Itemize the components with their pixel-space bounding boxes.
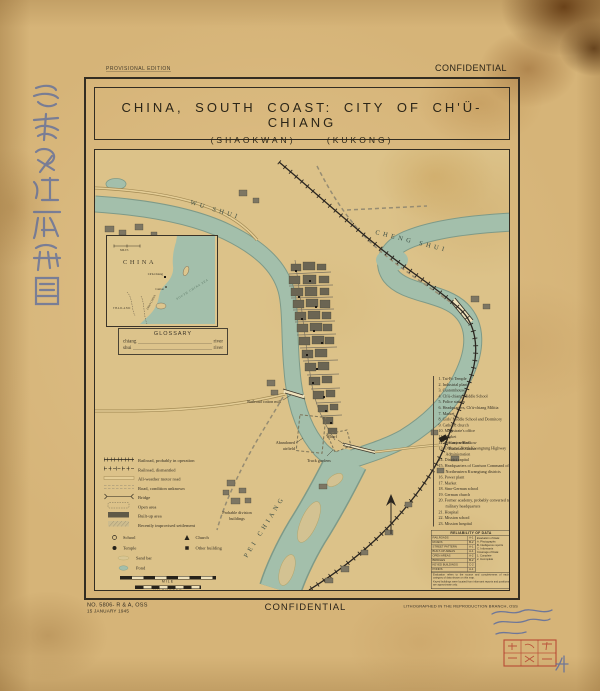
inset-location-map: MILES CHINA Ch'ü-Chiang Canton THAILAND … — [106, 235, 218, 327]
inset-scale-bar — [114, 245, 140, 248]
airfield-label-1: Abandoned — [276, 440, 296, 445]
row-grade: A-1 — [467, 545, 475, 549]
reliability-explanation: Evaluation of Data: A. Photographs B. In… — [475, 536, 510, 572]
reliability-notes: Evaluation refers to the source and comp… — [432, 572, 511, 589]
inset-scale-label: MILES — [120, 249, 129, 252]
glossary-title: GLOSSARY — [123, 331, 223, 337]
legend-label: Railroad, probably in operation — [138, 458, 194, 463]
map-date: 15 JANUARY 1945 — [87, 609, 237, 614]
explanation-line: 2. Incomplete — [477, 558, 509, 562]
row-label: RAILROADS — [432, 536, 468, 540]
row-label: STREET PATTERN — [432, 545, 468, 549]
handwritten-mark — [556, 656, 568, 672]
reliability-table: RELIABILITY OF DATA RAILROADSA-1 ROADSB-… — [431, 530, 510, 589]
temple-icon — [110, 544, 119, 551]
pond-icon — [116, 565, 131, 572]
river-junction — [332, 449, 358, 475]
glossary-def: river — [214, 345, 223, 352]
map-number: NO. 5806- R & A, OSS — [87, 602, 237, 608]
glossary-entry: shui river — [123, 345, 223, 352]
legend-row: Railroad, probably in operation — [103, 456, 253, 465]
legend-label: Bridge — [138, 495, 150, 500]
row-grade: B-2 — [467, 541, 475, 545]
road-unknown-symbol — [103, 484, 138, 494]
legend-label: Church — [196, 535, 209, 540]
kilometer-scale-bar — [135, 586, 201, 590]
legend-label: Recently improvised settlement — [138, 523, 195, 528]
legend-church: Church — [176, 532, 249, 543]
legend-label: Railroad, dismantled — [138, 467, 175, 472]
row-grade: A-2 — [467, 554, 475, 558]
map-subtitle: (SHAOKWAN) (KUKONG) — [95, 135, 509, 145]
improvised-settlement-symbol — [103, 520, 138, 531]
legend-sand-bar: Sand bar — [103, 553, 253, 563]
mile-scale-label: MILE — [103, 580, 233, 584]
glossary-box: GLOSSARY chiang river shui river — [118, 328, 228, 355]
key-item: 20. Former academy, probably converted t… — [439, 498, 511, 510]
red-stamp — [504, 640, 556, 666]
inset-hainan — [156, 303, 166, 309]
legend-label: Pond — [136, 566, 145, 571]
row-grade: A-1 — [467, 550, 475, 554]
key-item: 13. Office of North Kwangtung Highway Ad… — [439, 446, 511, 458]
row-grade: B-2 — [467, 559, 475, 563]
table-row: PONDSA-1 — [432, 568, 476, 573]
legend-pond: Pond — [103, 563, 253, 573]
sand-bar-icon — [116, 555, 131, 562]
alt-name-kukong: (KUKONG) — [327, 135, 394, 145]
legend-row: Road, condition unknown — [103, 484, 253, 493]
inset-country-label: CHINA — [123, 259, 156, 266]
alt-name-shaokwan: (SHAOKWAN) — [211, 135, 296, 145]
legend-point-symbols: School Church Temple Other building — [103, 532, 253, 553]
wharf-label: Wharf — [326, 434, 337, 439]
legend-label: Other building — [196, 545, 222, 550]
key-item: 15. Headquarters of Garrison Command of … — [439, 463, 511, 475]
confidential-top-label: CONFIDENTIAL — [435, 63, 507, 73]
legend-row: All-weather motor road — [103, 475, 253, 484]
legend-label: Sand bar — [136, 556, 152, 561]
title-box: CHINA, SOUTH COAST: CITY OF CH'Ü-CHIANG … — [94, 87, 510, 140]
motor-road-symbol — [103, 474, 138, 484]
legend-other-building: Other building — [176, 543, 249, 554]
building-icon — [183, 544, 192, 551]
note-paragraph: Evaluation refers to the source and comp… — [433, 574, 509, 580]
row-label: PONDS — [432, 568, 468, 572]
row-grade: C-2 — [467, 563, 475, 567]
truck-gardens-label: Truck gardens — [307, 458, 331, 463]
map-number-block: NO. 5806- R & A, OSS 15 JANUARY 1945 — [87, 602, 237, 614]
confidential-bottom-label: CONFIDENTIAL — [248, 602, 363, 613]
note-paragraph: Keyed buildings were located from inform… — [433, 581, 509, 587]
railroad-dismantled-symbol — [103, 465, 138, 475]
row-label: BRIDGES — [432, 559, 468, 563]
legend-label: Temple — [123, 545, 136, 550]
scanned-map-sheet: { "sheet": { "edition": "PROVISIONAL EDI… — [0, 0, 600, 691]
kilometer-scale-label: KILOMETER — [103, 590, 233, 592]
legend-temple: Temple — [103, 543, 176, 554]
railroad-operating-symbol — [103, 456, 138, 466]
inset-city-label: Ch'ü-Chiang — [148, 272, 164, 276]
building-key-panel: 1. Tai-Fo Temple 2. Industrial plant 3. … — [433, 376, 510, 527]
row-label: BUILT-UP AREAS — [432, 550, 468, 554]
legend-row: Railroad, dismantled — [103, 465, 253, 474]
inset-art: MILES CHINA Ch'ü-Chiang Canton THAILAND … — [107, 236, 215, 324]
inset-canton-marker — [165, 286, 167, 288]
airfield-label-2: airfield — [283, 446, 296, 451]
map-title: CHINA, SOUTH COAST: CITY OF CH'Ü-CHIANG — [95, 100, 509, 130]
map-body: WU SHUI CHENG SHUI PEI CHIANG Railroad c… — [94, 149, 510, 591]
legend-label: All-weather motor road — [138, 477, 180, 482]
mile-scale-bar — [120, 576, 216, 580]
row-grade: A-1 — [467, 568, 475, 572]
row-grade: A-1 — [467, 536, 475, 540]
scale-bars: MILE KILOMETER — [103, 576, 233, 591]
legend-label: Open area — [138, 504, 156, 509]
row-label: ROADS — [432, 541, 468, 545]
reliability-rows: RAILROADSA-1 ROADSB-2 STREET PATTERNA-1 … — [432, 536, 476, 572]
provisional-edition-label: PROVISIONAL EDITION — [106, 66, 171, 72]
dotted-leader — [133, 350, 211, 351]
school-icon — [110, 534, 119, 541]
legend-row: Recently improvised settlement — [103, 521, 253, 530]
key-item: 23. Mission hospital — [439, 521, 511, 527]
row-label: KEYED BUILDINGS — [432, 563, 468, 567]
legend-school: School — [103, 532, 176, 543]
cotton-mill-label: Railroad cotton mill — [247, 399, 282, 404]
inset-canton-label: Canton — [155, 287, 164, 291]
legend-label: School — [123, 535, 136, 540]
catalog-annotations — [488, 606, 578, 678]
legend-panel: Railroad, probably in operation Railroad… — [103, 456, 253, 591]
handwritten-catalog-note — [492, 610, 552, 634]
inset-thailand-label: THAILAND — [113, 307, 131, 310]
dotted-leader — [138, 343, 211, 344]
legend-label: Road, condition unknown — [138, 486, 185, 491]
legend-label: Built-up area — [138, 514, 162, 519]
church-icon — [183, 534, 192, 541]
inset-city-marker — [164, 276, 166, 278]
row-label: OPEN AREAS — [432, 554, 468, 558]
handwritten-margin-note — [28, 82, 68, 322]
glossary-term: shui — [123, 345, 131, 352]
